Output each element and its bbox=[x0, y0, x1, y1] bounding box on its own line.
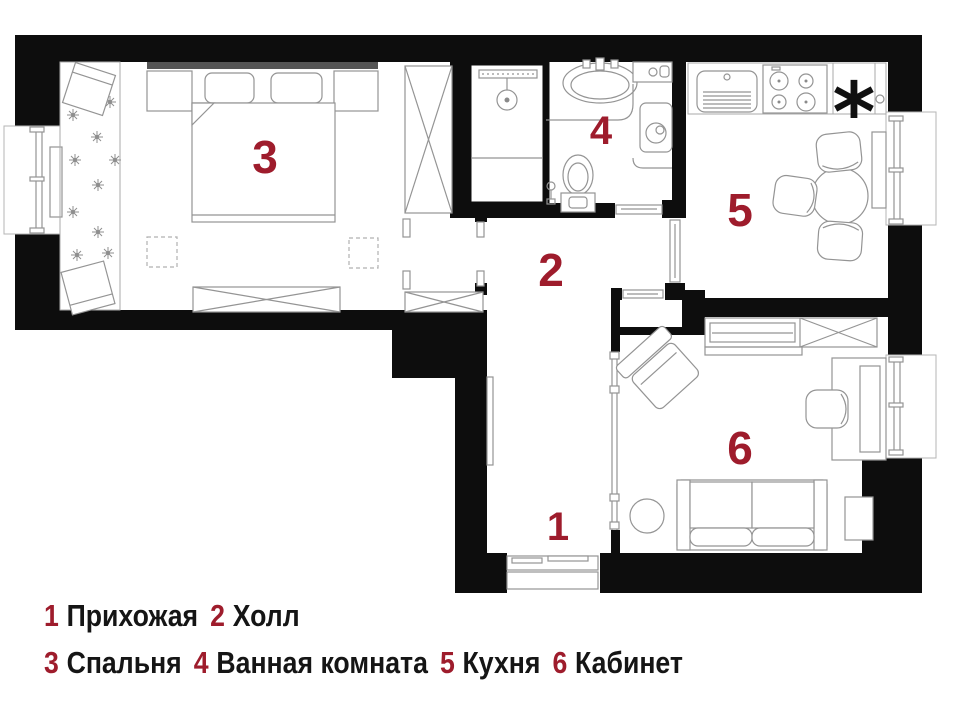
legend-number: 6 bbox=[552, 645, 567, 680]
legend-line-2: 3Спальня4Ванная комната5Кухня6Кабинет bbox=[44, 639, 695, 686]
nightstand-right bbox=[334, 71, 378, 111]
kitchen-sink bbox=[697, 71, 757, 112]
room-label-2: 2 bbox=[538, 244, 564, 296]
chair bbox=[772, 174, 819, 217]
entry-door bbox=[507, 556, 598, 589]
room-label-1: 1 bbox=[547, 505, 569, 549]
kitchen: * bbox=[670, 63, 886, 282]
room-label-6: 6 bbox=[727, 422, 753, 474]
wardrobe-office bbox=[705, 318, 877, 355]
glass-partition bbox=[610, 352, 619, 530]
door-bedroom bbox=[403, 219, 484, 289]
bedroom bbox=[60, 62, 484, 315]
floor-plan-page: * bbox=[0, 0, 960, 720]
legend-number: 1 bbox=[44, 598, 59, 633]
wardrobe-bedroom bbox=[405, 66, 452, 213]
headboard bbox=[147, 62, 378, 69]
room-label-5: 5 bbox=[727, 184, 753, 236]
armchair-top bbox=[63, 63, 116, 116]
pillow bbox=[205, 73, 254, 103]
bathroom-sink bbox=[563, 58, 637, 103]
legend-number: 5 bbox=[440, 645, 455, 680]
legend-label: Ванная комната bbox=[216, 645, 428, 680]
room-label-4: 4 bbox=[590, 109, 613, 153]
armchair-bottom bbox=[61, 261, 115, 315]
door-kitchen bbox=[670, 220, 680, 282]
bench bbox=[193, 287, 340, 312]
washing-machine bbox=[640, 103, 672, 152]
bathroom bbox=[468, 58, 672, 214]
armchair-office bbox=[615, 325, 704, 414]
threshold-step bbox=[405, 292, 483, 312]
legend-number: 4 bbox=[194, 645, 209, 680]
ceiling-marker bbox=[147, 237, 177, 267]
bathroom-shelf bbox=[633, 62, 672, 82]
window-bedroom bbox=[4, 126, 62, 234]
floor-plan: * bbox=[0, 0, 960, 595]
legend-label: Кабинет bbox=[575, 645, 683, 680]
stove bbox=[763, 65, 827, 113]
legend-label: Холл bbox=[233, 598, 300, 633]
nightstand-left bbox=[147, 71, 192, 111]
entry-wardrobe bbox=[487, 377, 493, 465]
legend-line-1: 1Прихожая2Холл bbox=[44, 592, 695, 639]
legend-number: 2 bbox=[210, 598, 225, 633]
chair bbox=[817, 221, 864, 262]
legend: 1Прихожая2Холл 3Спальня4Ванная комната5К… bbox=[44, 592, 695, 686]
legend-label: Кухня bbox=[463, 645, 541, 680]
coffee-table bbox=[845, 497, 873, 540]
counter-edge bbox=[633, 158, 672, 168]
toilet bbox=[547, 155, 595, 212]
plants bbox=[67, 96, 121, 261]
legend-number: 3 bbox=[44, 645, 59, 680]
chair bbox=[815, 131, 863, 173]
window-office bbox=[886, 355, 936, 458]
room-label-3: 3 bbox=[252, 131, 278, 183]
ceiling-marker bbox=[349, 238, 378, 268]
dining-table bbox=[772, 131, 868, 262]
pillow bbox=[271, 73, 322, 103]
side-table bbox=[630, 499, 664, 533]
sofa bbox=[677, 480, 827, 550]
window-kitchen bbox=[872, 112, 936, 225]
desk-chair bbox=[806, 390, 848, 428]
shower bbox=[468, 62, 546, 205]
legend-label: Спальня bbox=[67, 645, 182, 680]
legend-label: Прихожая bbox=[67, 598, 199, 633]
door-bathroom bbox=[616, 205, 662, 214]
door-closet bbox=[623, 290, 663, 298]
